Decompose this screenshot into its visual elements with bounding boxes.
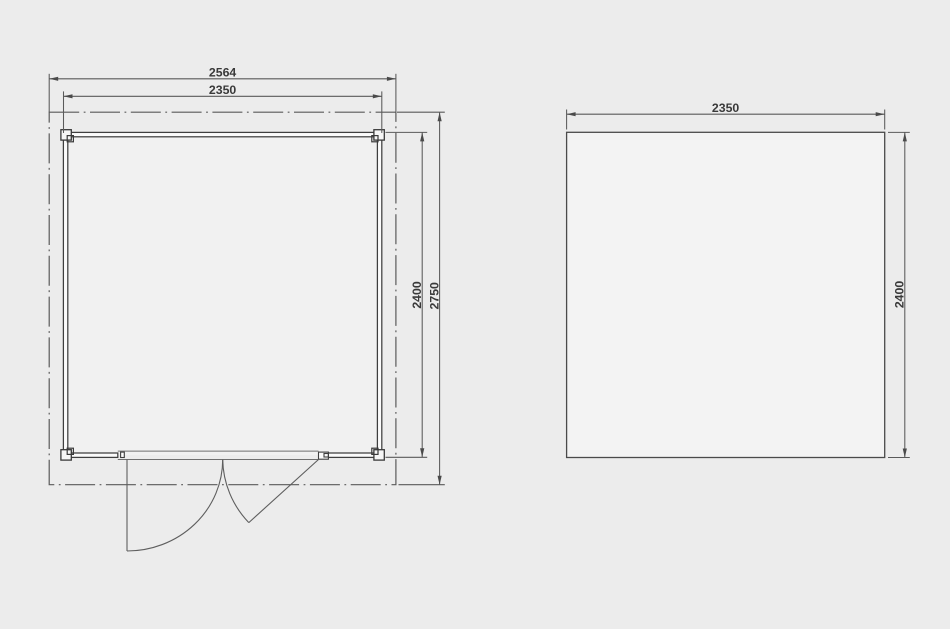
svg-text:2564: 2564	[209, 65, 237, 79]
svg-text:2350: 2350	[209, 83, 237, 97]
svg-text:2400: 2400	[892, 281, 906, 309]
svg-text:2750: 2750	[427, 282, 441, 310]
svg-text:2400: 2400	[410, 281, 424, 309]
svg-text:2350: 2350	[712, 101, 740, 115]
